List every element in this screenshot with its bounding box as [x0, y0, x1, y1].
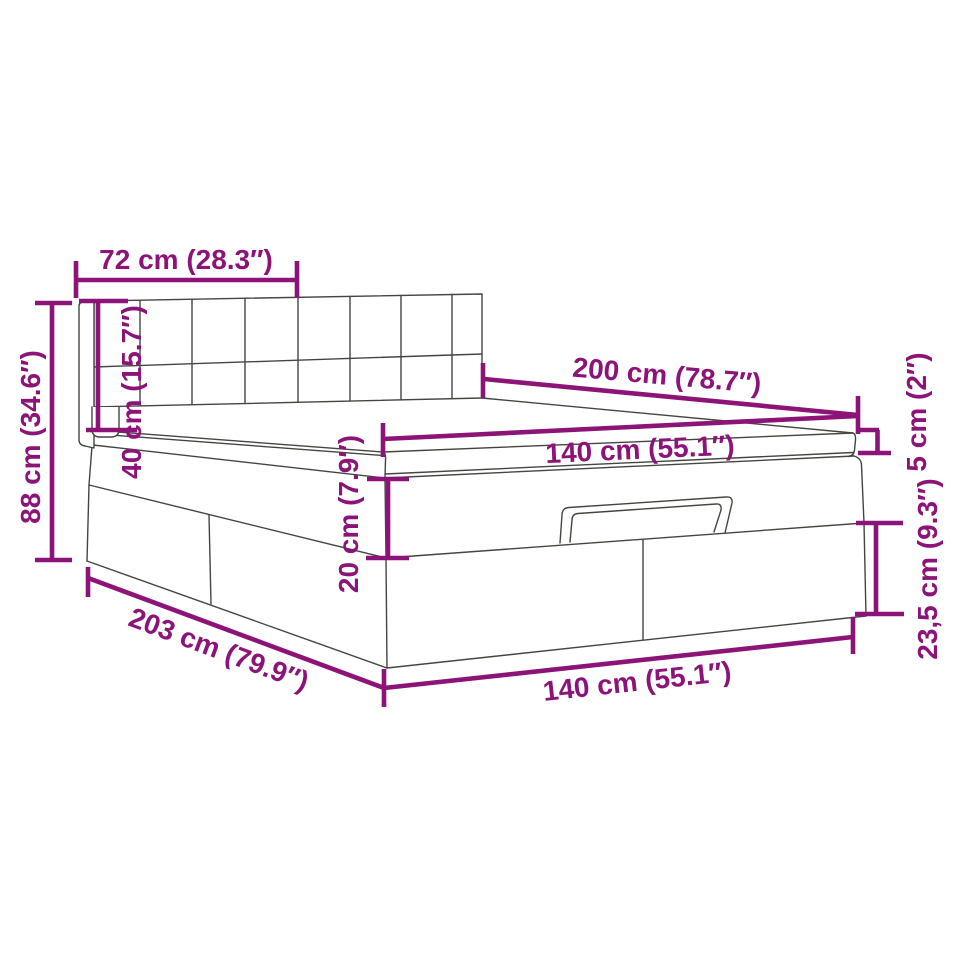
bed-illustration — [79, 294, 866, 668]
dim-mattress-thickness — [858, 430, 891, 453]
dim-base-height — [855, 523, 904, 614]
lift-handle-inner-outline — [570, 504, 721, 542]
label-headboard-height: 40 cm (15.7″) — [116, 305, 147, 479]
mattress-outline — [91, 398, 856, 478]
dimension-diagram-page: 72 cm (28.3″) 88 cm (34.6″) 40 cm (15.7″… — [0, 0, 955, 955]
label-overall-height: 88 cm (34.6″) — [15, 350, 46, 524]
label-headboard-width: 72 cm (28.3″) — [99, 244, 273, 275]
bed-dimension-diagram: 72 cm (28.3″) 88 cm (34.6″) 40 cm (15.7″… — [0, 0, 955, 955]
label-width-bottom: 140 cm (55.1″) — [541, 656, 733, 707]
label-base-height: 23,5 cm (9.3″) — [912, 478, 943, 660]
dim-lid-height — [366, 479, 409, 558]
label-mattress-thickness: 5 cm (2″) — [901, 352, 932, 471]
label-lid-height: 20 cm (7.9″) — [333, 435, 364, 593]
lift-handle-outline — [560, 497, 732, 543]
ottoman-lid-outline — [89, 446, 864, 558]
